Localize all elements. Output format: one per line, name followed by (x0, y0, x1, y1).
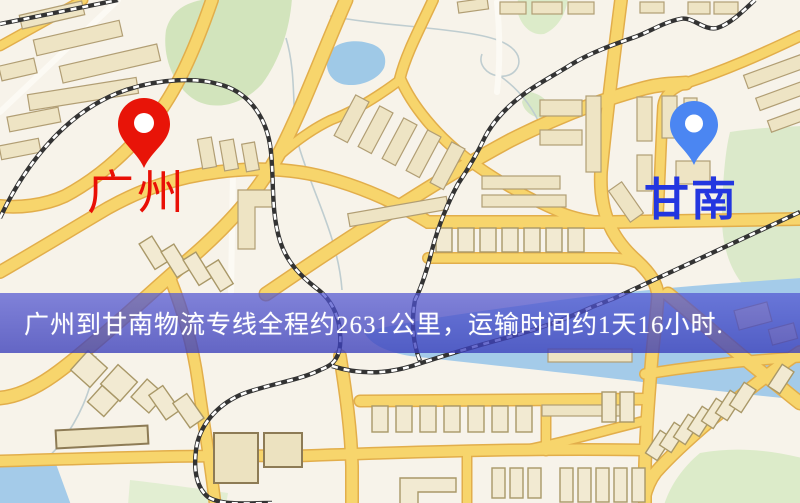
destination-label: 甘南 (644, 177, 738, 222)
map-view: 广州 甘南 广州到甘南物流专线全程约2631公里，运输时间约1天16小时. (0, 0, 800, 503)
origin-label: 广州 (87, 171, 187, 218)
destination-pin-icon[interactable] (662, 99, 726, 167)
origin-pin-icon[interactable] (109, 96, 179, 170)
map-canvas[interactable] (0, 0, 800, 503)
route-info-text: 广州到甘南物流专线全程约2631公里，运输时间约1天16小时. (0, 305, 724, 341)
route-info-banner: 广州到甘南物流专线全程约2631公里，运输时间约1天16小时. (0, 293, 800, 353)
